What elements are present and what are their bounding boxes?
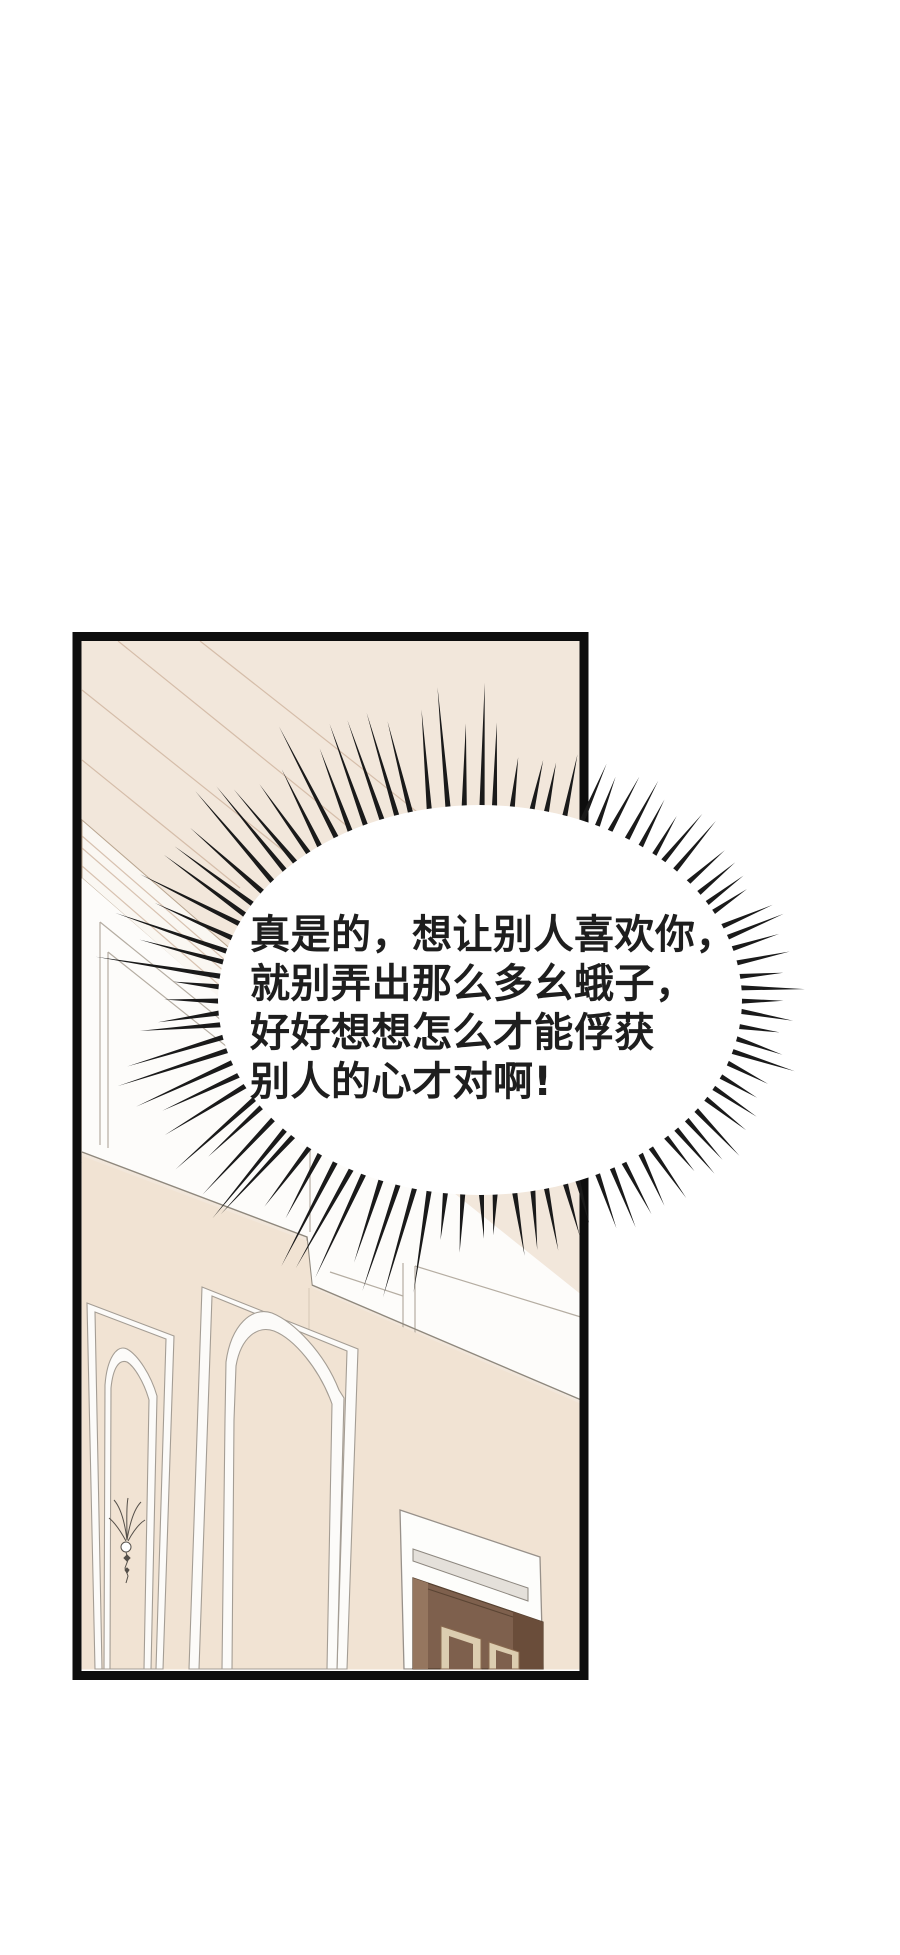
wall-panel-arch-wide — [189, 1287, 358, 1669]
bubble-text-line: 就别弄出那么多幺蛾子， — [250, 961, 696, 1007]
comic-artwork: 真是的，想让别人喜欢你， 就别弄出那么多幺蛾子， 好好想想怎么才能俘获 别人的心… — [0, 0, 900, 1955]
door-left-stile — [413, 1578, 428, 1669]
bubble-text-line: 别人的心才对啊! — [250, 1059, 552, 1105]
comic-page: 真是的，想让别人喜欢你， 就别弄出那么多幺蛾子， 好好想想怎么才能俘获 别人的心… — [0, 0, 900, 1955]
bubble-text-line: 真是的，想让别人喜欢你， — [250, 912, 736, 958]
bubble-text-line: 好好想想怎么才能俘获 — [249, 1010, 655, 1056]
wall-panel-arch-narrow — [87, 1303, 174, 1669]
